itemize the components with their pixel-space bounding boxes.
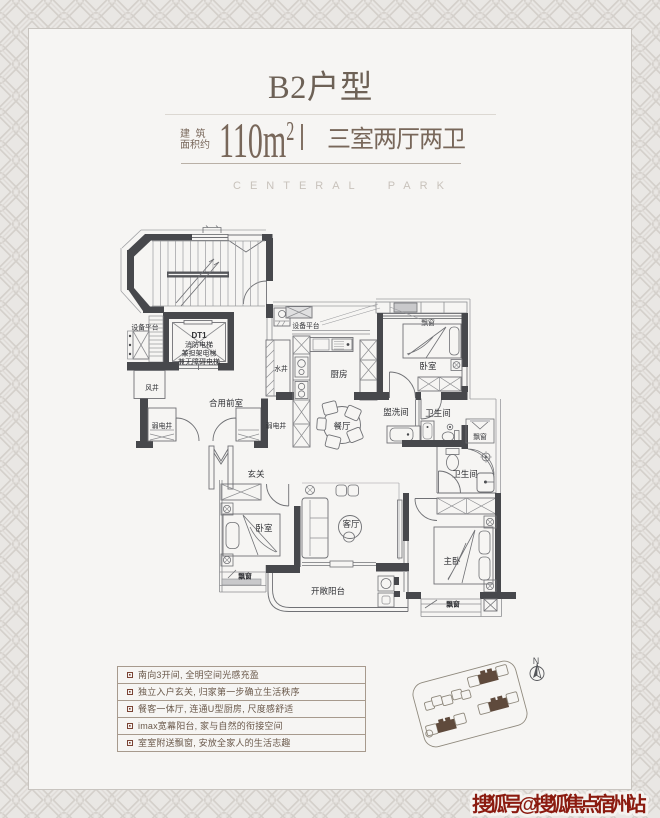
svg-text:卫生间: 卫生间 [452,469,478,479]
svg-text:卫生间: 卫生间 [425,408,451,418]
svg-text:飘窗: 飘窗 [421,318,435,327]
svg-text:厨房: 厨房 [330,369,347,379]
svg-text:弱电井: 弱电井 [266,421,287,430]
svg-text:飘窗: 飘窗 [473,432,487,441]
svg-text:盥洗间: 盥洗间 [383,407,409,417]
svg-text:设备平台: 设备平台 [292,321,319,330]
svg-text:兼无障碍电梯: 兼无障碍电梯 [178,357,220,366]
svg-text:消防电梯: 消防电梯 [185,340,213,349]
svg-text:弱电井: 弱电井 [152,421,173,430]
svg-text:DT1: DT1 [191,331,207,340]
svg-text:卧室: 卧室 [255,523,273,533]
svg-text:主卧: 主卧 [443,556,461,566]
svg-text:客厅: 客厅 [342,519,360,529]
svg-text:开敞阳台: 开敞阳台 [311,586,345,596]
svg-text:玄关: 玄关 [247,469,265,479]
svg-text:合用前室: 合用前室 [209,398,244,408]
svg-text:N: N [533,656,540,666]
svg-text:风井: 风井 [145,383,159,392]
svg-text:餐厅: 餐厅 [333,421,351,431]
svg-text:飘窗: 飘窗 [446,600,460,609]
svg-text:卧室: 卧室 [419,361,437,371]
svg-text:水井: 水井 [274,364,288,373]
svg-text:兼担架电梯: 兼担架电梯 [182,349,217,358]
svg-text:搜狐号@搜狐焦点宿州站: 搜狐号@搜狐焦点宿州站 [472,792,647,816]
svg-text:飘窗: 飘窗 [238,572,252,581]
